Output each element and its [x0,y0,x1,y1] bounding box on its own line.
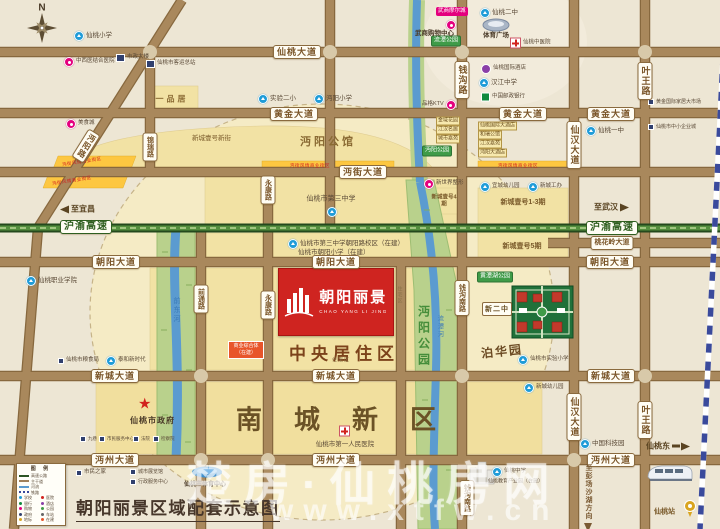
poi-xincheng-yihao-4: 新城壹号4期 [430,194,458,207]
zone-residential-label: 住宅区 [332,357,350,364]
poi-chengshi-jiayuan: 城市嘉苑 [436,135,460,144]
road-label-expressway: 沪渝高速 [586,221,638,235]
map-canvas: 仙桃大道 黄金大道 黄金大道 黄金大道 沔街大道 沪渝高速 沪渝高速 桃花岭大道… [0,0,720,529]
road-label-yongkang-road: 永康路 [261,176,276,205]
poi-mianyang-hotel: 沔阳大酒店 [478,149,507,158]
arrow-down-icon [584,523,592,529]
zone-new-no2-middle: 新二中 [482,302,512,316]
government-icon [58,358,64,364]
project-name: 朝阳丽景 [319,290,388,307]
poi-xiantao-2nd-middle: 仙桃二中 [480,8,518,18]
legend-title: 图 例 [19,466,63,473]
poi-third-middle: 仙桃市第三中学 [307,196,356,203]
bank-icon [481,93,490,102]
school-dot-icon [19,496,22,499]
school-icon [258,94,268,104]
ktv-pink-icon [446,100,456,110]
road-label-chaoyang-avenue: 朝阳大道 [312,255,360,269]
shopping-pink-icon [66,119,76,129]
strip-label-food-street: 沔街风情商业街区 [290,164,330,169]
arrow-left-icon [60,205,69,213]
poi-herui-mansion: 和瑞公馆 [478,131,502,140]
road-swatch-icon [19,480,29,482]
park-tag-huangtanhu: 黄潭湖公园 [477,272,513,283]
compass-north-label: N [38,3,45,14]
bank-dot-icon [19,502,22,505]
poi-intl-hotel: 仙桃国际酒店 [481,64,526,74]
road-label-xincheng-avenue: 新城大道 [91,369,139,383]
road-label-jinrui-road: 锦瑞路 [143,133,158,162]
commercial-complex-box: 商业综合体（在建） [228,341,264,359]
road-label-qiantong-road: 前通路 [194,285,209,314]
poi-xincheng-gongban: 新城工办 [528,182,562,192]
residence-icon [106,356,116,366]
poi-xinshijie-plastic: 新世界整形 [424,179,464,189]
poi-mianyang-primary: 沔阳小学 [314,94,352,104]
poi-taihe-new-era: 泰和新时代 [106,356,146,366]
zone-mianyang-mansion: 沔阳公馆 [300,133,356,149]
direction-east-label: 至武汉 [594,202,618,213]
hotel-dot-icon [41,502,44,505]
arrow-right-icon [681,442,690,450]
poi-food-city: 美食城 [66,119,95,129]
xiantao-east-label: 仙桃东 [646,441,670,452]
road-label-qiangou-road: 钱沟路 [455,61,470,99]
project-name-block: 朝阳丽景 CHAO YANG LI JING [319,290,388,314]
school-icon [327,207,337,217]
road-label-huangjin-avenue: 黄金大道 [270,107,318,121]
government-icon [133,436,139,442]
hospital-cross-icon [339,426,350,437]
kindergarten-icon [524,383,534,393]
school-icon [288,239,298,249]
poi-wushang-mall-badge: 武商摩尔城 [436,7,468,16]
poi-xincheng-kindergarten: 新城幼儿园 [524,383,564,393]
shopping-pink-icon [446,20,456,30]
siteplan-inset [512,286,573,338]
poi-third-middle-branch: 仙桃市第三中学朝阳路校区（在建） [288,239,404,249]
legend-item: 地标 [19,517,41,523]
poi-wushang-shopping: 武商购物中心 [415,31,454,38]
direction-west: 至宜昌 [60,204,95,215]
poi-shiyan-2nd: 实验二小 [258,94,296,104]
poi-bus-terminal: 仙桃市客运总站 [146,60,196,68]
strip-label-food-street: 沔街风情商业街区 [498,164,538,169]
road-label-mianzhou-avenue: 沔州大道 [91,453,139,467]
poi-pinge-ktv: 品格KTV [422,100,456,110]
zone-residential-label: 住宅区 [397,286,404,304]
poi-grain-bureau: 仙桃市粮食局 [58,358,99,364]
poi-xiantao-1st-middle: 仙桃一中 [586,126,624,136]
building-logo-icon [284,285,314,319]
road-label-expressway: 沪渝高速 [60,220,112,234]
hospital-dot-icon [41,496,44,499]
park-dot-icon [41,507,44,510]
legend-box: 图 例 高速公路 主干道 河流 铁路 学校 医院 银行 酒店 购物 公园 政府 … [16,463,66,526]
poi-zhongxiyi-hospital: 中西医结合医院 [64,57,115,67]
school-icon [479,78,489,88]
enterprise-icon [648,124,654,130]
poi-gold-home-market: 黄金国际家居大市场 [648,99,701,105]
road-label-yewang-road: 叶王路 [638,62,653,100]
government-icon [99,436,105,442]
road-label-chaoyang-avenue: 朝阳大道 [586,255,634,269]
government-icon [130,479,136,485]
road-label-huangjin-avenue: 黄金大道 [587,107,635,121]
hospital-cross-icon [510,38,521,49]
swimming-pool-icon [192,467,222,478]
poi-vocational-college: 仙桃职业学院 [26,276,77,286]
landmark-dot-icon [19,518,22,521]
arrow-tail-icon [672,445,680,448]
direction-south: 至彭场沙湖方向 [583,464,593,529]
road-label-mianzhou-avenue: 沔州大道 [312,453,360,467]
river-name-qiandong: 前东河 [171,297,181,324]
school-icon [314,94,324,104]
river-swatch-icon [19,486,29,488]
poi-jinyu-garden: 金域花园 [436,117,460,126]
bus-station-icon [146,60,155,68]
road-label-qiangou-south-road: 钱沟南路 [460,480,475,516]
government-dot-icon [19,513,22,516]
page-title: 朝阳丽景区域配套示意图 [76,494,280,522]
river-name-liutan: 流潭河 [436,315,445,339]
poi-jianghan-jiayuan: 江汉嘉苑 [478,140,502,149]
government-star-icon [138,397,151,412]
government-icon [76,470,82,476]
poi-xiantao-station: 仙桃站 [654,509,675,516]
poi-tech-park: 中国科技园 [580,439,625,449]
poi-sme-city: 仙桃市中小企业城 [648,124,696,130]
poi-hanjiang-middle: 汉江中学 [479,78,517,88]
hospital-pink-icon [64,57,74,67]
kindergarten-icon [480,182,490,192]
road-label-huangjin-avenue: 黄金大道 [499,107,547,121]
poi-edu-park: 仙桃教育产业园（在建） [488,480,543,485]
poi-sports-center: 仙桃市体育中心 [184,482,226,488]
project-name-en: CHAO YANG LI JING [319,309,388,314]
road-label-mianjie-avenue: 沔街大道 [339,165,387,179]
poi-intl-grand-hotel: 仙桃国际大酒店 [478,122,517,131]
poi-admin-center: 行政服务中心 [130,479,168,485]
poi-jiuxiang: 九巷 [80,436,97,442]
poi-city-gov: 仙桃市政府 [130,417,175,425]
poi-third-middle-icon [327,207,337,217]
poi-xincheng-yihao-13: 新城壹号1-3期 [492,199,554,207]
road-label-taohualing-avenue: 桃花岭大道 [591,236,634,250]
construction-dot-icon [41,518,44,521]
poi-citizen-home: 市民之家 [76,470,106,476]
poi-first-hospital-icon [339,426,350,437]
poi-tcm-hospital: 仙桃中医院 [510,38,551,49]
school-icon [74,31,84,41]
road-label-qiangou-south-road: 钱沟南路 [455,280,470,316]
poi-procuratorate: 检察院 [153,436,175,442]
expressway-swatch-icon [19,475,29,477]
tech-park-icon [580,439,590,449]
road-label-xiantao-avenue: 仙桃大道 [273,45,321,59]
direction-east: 至武汉 [594,202,629,213]
road-label-yewang-road: 叶王路 [638,401,653,439]
poi-exhibition-hall: 城市展览馆 [130,469,163,475]
poi-court: 法院 [133,436,150,442]
office-icon [528,182,538,192]
direction-south-label: 至彭场沙湖方向 [583,464,593,520]
road-label-xincheng-avenue: 新城大道 [587,369,635,383]
poi-xincheng-yihao-street: 新城壹号新街 [192,136,231,143]
shopping-dot-icon [19,507,22,510]
legend-grid: 学校 医院 银行 酒店 购物 公园 政府 车站 地标 在建 [19,495,63,523]
government-icon [116,54,125,62]
zone-yipinju: 一品居 [156,94,189,105]
school-icon [492,467,502,477]
station-dot-icon [41,513,44,516]
school-icon [518,355,528,365]
park-name-mianyang: 沔阳公园 [416,305,433,369]
government-icon [80,436,86,442]
park-tag-mianyang: 沔阳公园 [422,146,452,157]
poi-citizen-service: 市民服务中心 [99,436,134,442]
clinic-pink-icon [424,179,434,189]
arrow-right-icon [620,203,629,211]
direction-xiantao-east: 仙桃东 [646,441,690,452]
poi-xiantao-middle: 仙桃中学 [492,467,526,477]
road-label-xianhan-avenue: 仙汉大道 [567,121,582,169]
road-label-xianhan-avenue: 仙汉大道 [567,393,582,441]
zone-south-new-district: 南城新区 [236,400,468,437]
poi-city-gov-star [138,397,151,412]
project-marker: 朝阳丽景 CHAO YANG LI JING [278,268,394,336]
poi-shiyan-primary: 仙桃市实验小学 [518,355,569,365]
legend-item: 在建 [41,517,63,523]
government-icon [153,436,159,442]
poi-postal-bank: 中国邮政银行 [481,93,525,102]
poi-wushang-icon [446,20,456,30]
school-icon [26,276,36,286]
hotel-icon [481,64,491,74]
poi-jianghan-mingju: 江汉名居 [436,126,460,135]
poi-sports-plaza: 体育广场 [483,33,509,40]
poi-xincheng-yihao-5: 新城壹号5期 [491,243,553,251]
poi-first-hospital: 仙桃市第一人民医院 [316,442,375,449]
poi-xiantao-primary: 仙桃小学 [74,31,112,41]
train-icon [648,466,692,481]
railway-swatch-icon [19,491,29,493]
direction-west-label: 至宜昌 [71,204,95,215]
road-label-yongkang-road: 永康路 [261,291,276,320]
school-icon [586,126,596,136]
road-label-mianzhou-avenue: 沔州大道 [587,453,635,467]
poi-yicheng-kindergarten: 宜城幼儿园 [480,182,520,192]
road-label-xincheng-avenue: 新城大道 [312,369,360,383]
road-label-chaoyang-avenue: 朝阳大道 [92,255,140,269]
stadium-icon [483,19,509,31]
museum-icon [130,469,136,475]
school-icon [480,8,490,18]
poi-municipal-building: 市政大楼 [116,54,149,62]
